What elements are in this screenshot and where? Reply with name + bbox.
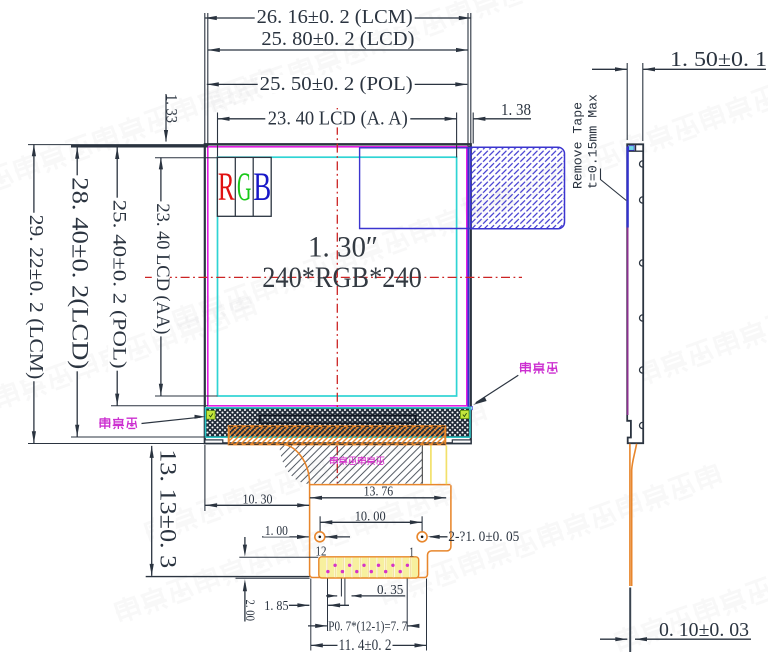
svg-text:1. 85: 1. 85 xyxy=(264,599,288,614)
svg-text:26. 16±0. 2 (LCM): 26. 16±0. 2 (LCM) xyxy=(257,6,413,28)
svg-text:0. 35: 0. 35 xyxy=(377,583,403,598)
svg-text:29. 22±0. 2 (LCM): 29. 22±0. 2 (LCM) xyxy=(25,215,47,379)
svg-text:1. 50±0. 1: 1. 50±0. 1 xyxy=(670,47,767,71)
svg-text:13. 76: 13. 76 xyxy=(364,483,394,498)
svg-text:10. 30: 10. 30 xyxy=(243,491,273,506)
svg-text:Remove Tapet=0.15mm Max: Remove Tapet=0.15mm Max xyxy=(571,94,601,189)
svg-text:1. 33: 1. 33 xyxy=(163,94,180,123)
svg-text:R: R xyxy=(218,164,235,209)
svg-text:1: 1 xyxy=(409,545,414,560)
svg-text:1. 38: 1. 38 xyxy=(501,100,531,119)
svg-text:B: B xyxy=(253,164,271,209)
svg-text:25. 40±0. 2 (POL): 25. 40±0. 2 (POL) xyxy=(108,200,129,369)
svg-text:28. 40±0. 2(LCD): 28. 40±0. 2(LCD) xyxy=(68,177,93,369)
svg-text:1. 30″: 1. 30″ xyxy=(308,231,378,264)
svg-text:240*RGB*240: 240*RGB*240 xyxy=(262,261,422,294)
svg-text:11. 4±0. 2: 11. 4±0. 2 xyxy=(339,637,392,654)
svg-text:12: 12 xyxy=(316,544,327,559)
svg-text:2-?1. 0±0. 05: 2-?1. 0±0. 05 xyxy=(448,529,519,545)
svg-text:P0. 7*(12-1)=7. 7: P0. 7*(12-1)=7. 7 xyxy=(328,619,407,634)
svg-text:23. 40 LCD (AA): 23. 40 LCD (AA) xyxy=(152,203,173,334)
svg-text:25. 50±0. 2 (POL): 25. 50±0. 2 (POL) xyxy=(260,73,413,95)
svg-text:13. 13±0. 3: 13. 13±0. 3 xyxy=(156,449,181,568)
svg-text:0. 10±0. 03: 0. 10±0. 03 xyxy=(659,620,749,641)
svg-text:10. 00: 10. 00 xyxy=(355,508,386,523)
svg-text:1. 00: 1. 00 xyxy=(265,523,288,538)
svg-text:23. 40 LCD (A. A): 23. 40 LCD (A. A) xyxy=(268,107,408,129)
svg-text:25. 80±0. 2 (LCD): 25. 80±0. 2 (LCD) xyxy=(261,28,414,50)
svg-text:G: G xyxy=(237,164,251,209)
svg-text:2. 00: 2. 00 xyxy=(243,600,258,622)
